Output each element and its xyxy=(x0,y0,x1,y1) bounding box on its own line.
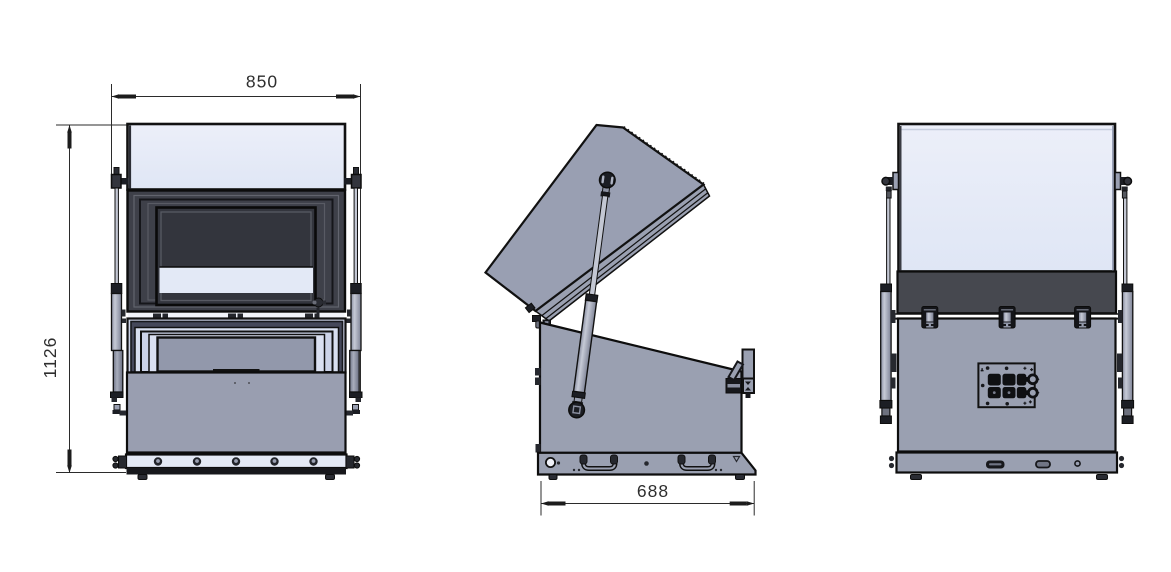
svg-text:688: 688 xyxy=(637,481,669,501)
svg-text:1126: 1126 xyxy=(40,337,60,379)
svg-text:850: 850 xyxy=(246,72,278,92)
